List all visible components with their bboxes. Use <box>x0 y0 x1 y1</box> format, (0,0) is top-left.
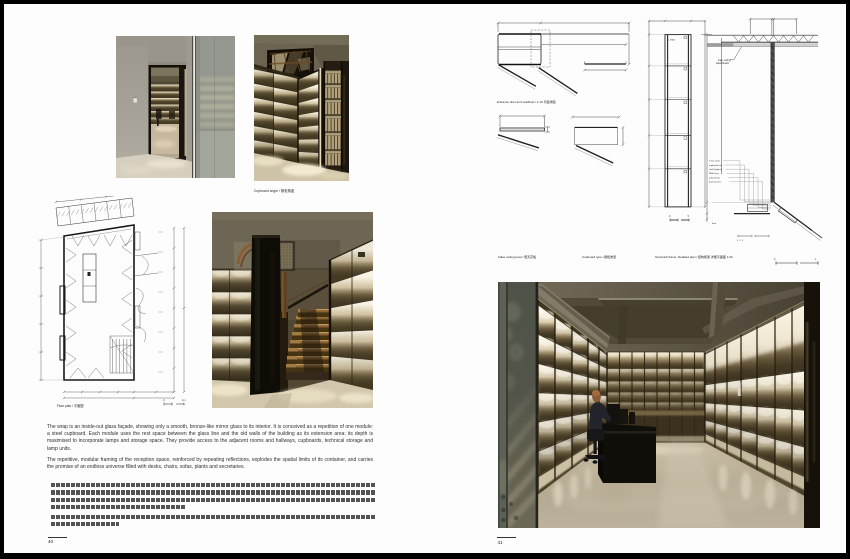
svg-text:0: 0 <box>163 399 165 402</box>
svg-text:h. max: h. max <box>667 38 675 42</box>
svg-text:3 mm steel: 3 mm steel <box>709 160 720 163</box>
svg-text:cupboard unit: cupboard unit <box>709 164 723 167</box>
svg-text:Cupboard type / 橱柜类型: Cupboard type / 橱柜类型 <box>582 254 616 259</box>
svg-text:1: 1 <box>815 258 817 261</box>
svg-text:plasterboard: plasterboard <box>716 62 729 65</box>
svg-text:fluorescent t.: fluorescent t. <box>709 181 722 184</box>
svg-text:Entrance door and vestibule /: Entrance door and vestibule / 1:10 平面详图 <box>497 99 556 104</box>
svg-text:0 .1 .2: 0 .1 .2 <box>737 240 744 242</box>
svg-text:attachment: attachment <box>709 176 720 179</box>
svg-text:0: 0 <box>774 258 776 261</box>
svg-text:susp. ceiling: susp. ceiling <box>718 60 731 62</box>
svg-text:False ceiling level / 假天花板: False ceiling level / 假天花板 <box>498 254 536 259</box>
svg-text:Structural frame. Detailed pla: Structural frame. Detailed plan / 结构框架 详… <box>655 254 733 259</box>
svg-text:Floor plan / 平面图: Floor plan / 平面图 <box>57 404 83 408</box>
svg-text:.5: .5 <box>687 215 690 218</box>
svg-text:MDF lacq.: MDF lacq. <box>709 173 719 175</box>
svg-text:shelf (adjust.): shelf (adjust.) <box>709 168 722 171</box>
svg-text:0: 0 <box>669 215 671 218</box>
svg-text:1m: 1m <box>182 399 185 402</box>
svg-text:floor: floor <box>712 222 717 225</box>
